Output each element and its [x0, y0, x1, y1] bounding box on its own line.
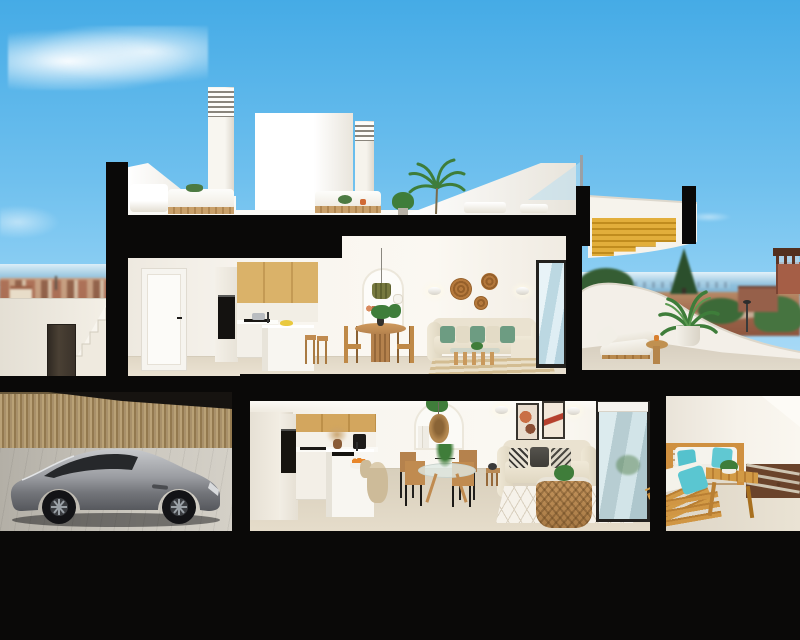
lower-niche-vases: [418, 426, 429, 448]
charcoal-cushion: [530, 447, 549, 467]
upper-door-handle: [177, 317, 182, 319]
upper-niche-jug: [393, 294, 403, 304]
coffee-machine: [353, 434, 366, 449]
patio-bench-bowl: [722, 469, 736, 474]
upper-fruit-bowl: [280, 320, 293, 326]
chimney2-vent-grille: [355, 122, 374, 141]
upper-stool-2: [317, 336, 328, 364]
cut-wall-garage: [232, 391, 250, 533]
sun-lounger-frame: [602, 355, 650, 359]
green-cushion-1: [440, 326, 455, 343]
side-door: [47, 324, 76, 379]
art-frame-right: [542, 401, 565, 439]
roof-palm: [408, 158, 466, 216]
dining-table-plant: [371, 305, 391, 319]
wicker-plate-large: [450, 278, 472, 300]
upper-sliding-door-glass: [539, 263, 565, 364]
cut-wall-patio: [650, 373, 666, 533]
dining-table-base: [371, 331, 390, 362]
wicker-plate-small: [474, 296, 488, 310]
rattan-barrel-stool: [367, 462, 388, 503]
lower-sconce-right: [567, 407, 580, 415]
art-frame-left: [516, 403, 539, 441]
roof-sofa-left-base: [168, 207, 234, 214]
rattan-basket-table: [536, 477, 592, 528]
upper-door: [141, 268, 187, 371]
cut-roof-slab-left: [118, 215, 342, 258]
roof-planter: [186, 184, 203, 192]
roof-sofa-left: [168, 189, 234, 209]
cut-roof-slab-right: [342, 215, 576, 236]
cut-stair-column-a: [576, 186, 590, 246]
cloud: [8, 26, 208, 90]
upper-coffee-table-plant: [471, 342, 483, 350]
watch-tower-posts: [776, 256, 799, 264]
upper-coffee-table-frame: [454, 352, 496, 365]
cut-column-left: [106, 162, 128, 392]
rattan-pendant-lamp: [429, 414, 449, 443]
cloud-wisp-left: [0, 205, 60, 239]
watch-tower-roof: [773, 248, 800, 256]
wicker-plate-top: [481, 273, 498, 290]
roller-blind: [598, 402, 648, 412]
patterned-cushion-1: [509, 448, 528, 468]
roof-accent-cushion: [360, 199, 366, 205]
lower-sconce-left: [495, 406, 508, 414]
roof-lounge-chair: [130, 184, 168, 212]
green-cushion-2: [470, 326, 485, 343]
glass-plant-reflection: [616, 455, 640, 475]
chimney-vent-grille: [208, 88, 234, 117]
upper-sconce-right: [516, 287, 529, 295]
architectural-section-render: [0, 0, 800, 640]
terrace-side-table-base: [653, 346, 660, 364]
island-faucet: [356, 442, 358, 451]
roof-sofa-right-base: [315, 206, 381, 213]
upper-island-faucet: [267, 312, 269, 323]
terrace-plant-pot: [676, 326, 700, 346]
pampas-vase: [333, 439, 342, 449]
lower-hob: [300, 447, 326, 450]
upper-stool-1: [305, 335, 316, 364]
roof-table-plant: [338, 195, 352, 204]
cream-cushion-1: [456, 326, 470, 343]
side-stool-decor: [488, 463, 497, 470]
side-stool: [486, 468, 500, 486]
lower-wall-oven: [281, 429, 296, 473]
silver-sports-car: [4, 438, 228, 530]
cream-cushion-2: [486, 326, 500, 343]
upper-sconce-left: [428, 287, 441, 295]
cut-mid-slab-right: [576, 370, 800, 396]
upper-oak-cabinets: [237, 262, 318, 305]
cut-stair-column-b: [682, 186, 696, 244]
pendant-cord: [381, 248, 382, 284]
roof-small-tree-pot: [398, 208, 408, 215]
olive-pendant-lamp: [372, 283, 391, 299]
roof-lounger-a: [464, 202, 506, 213]
roof-lounger-b: [520, 204, 548, 213]
dining-centerpiece-plant: [435, 444, 455, 468]
basket-table-plant: [554, 465, 574, 481]
upper-pot: [252, 313, 265, 320]
green-cushion-3: [500, 326, 515, 343]
upper-oven: [218, 295, 235, 339]
cut-mid-slab-left: [0, 376, 240, 392]
ground-cut-band: [0, 531, 800, 640]
island-sink: [332, 452, 354, 456]
